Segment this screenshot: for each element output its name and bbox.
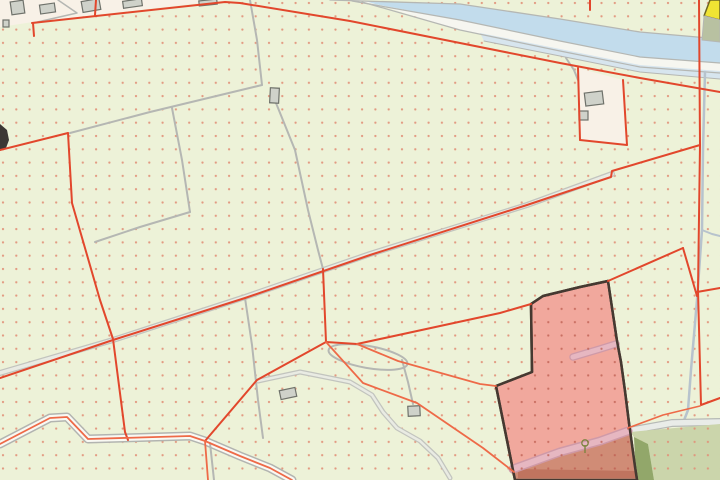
building bbox=[270, 88, 280, 103]
building bbox=[408, 406, 421, 417]
building bbox=[39, 3, 55, 14]
building bbox=[3, 20, 9, 27]
map-viewport[interactable] bbox=[0, 0, 720, 480]
building bbox=[584, 91, 603, 106]
map-canvas[interactable] bbox=[0, 0, 720, 480]
classified-area-olive bbox=[702, 16, 720, 42]
building bbox=[10, 0, 25, 15]
parcel-boundary-yard-stub bbox=[33, 23, 34, 36]
parcel-boundary-top-stub bbox=[95, 0, 96, 15]
